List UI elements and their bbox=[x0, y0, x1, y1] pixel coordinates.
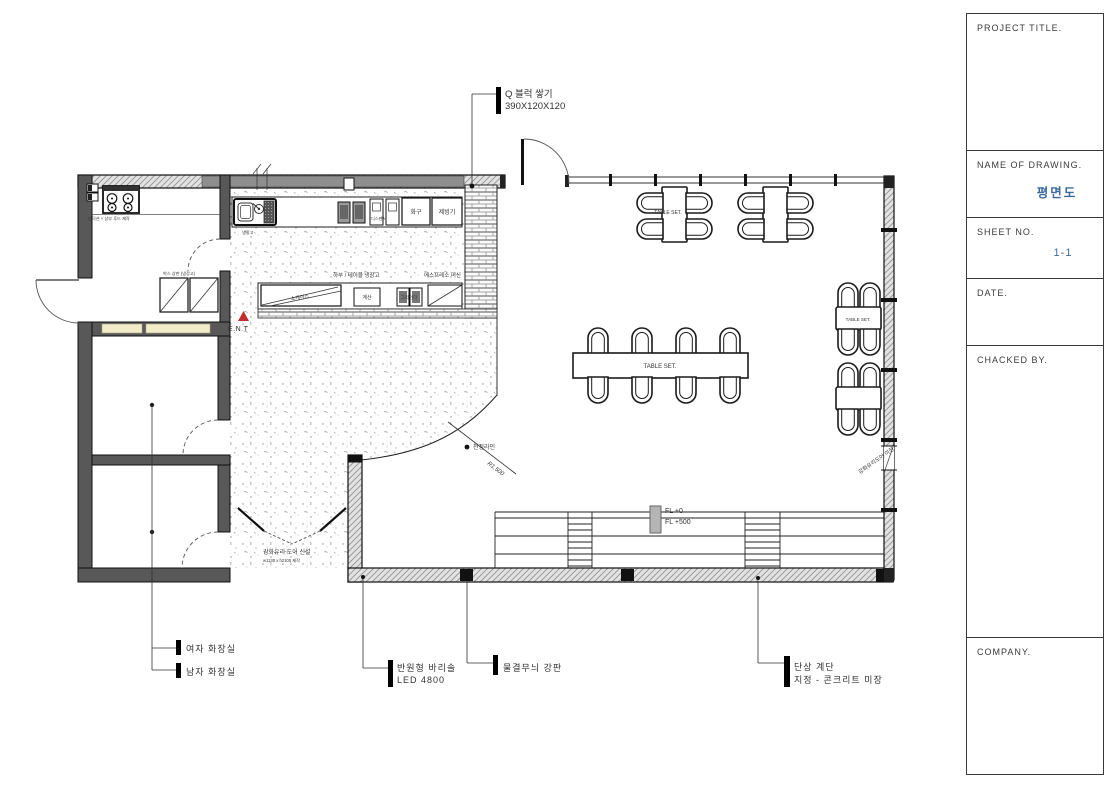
chair bbox=[787, 193, 813, 213]
title-block-sheet-no: SHEET NO. 1-1 bbox=[967, 218, 1103, 279]
leader-dot bbox=[361, 575, 365, 579]
chair bbox=[738, 193, 764, 213]
chair bbox=[632, 328, 652, 354]
women-restroom-door-arc bbox=[183, 420, 218, 455]
chair bbox=[860, 329, 880, 355]
sink-note: 냉장고 bbox=[242, 229, 254, 235]
grinder-label: 그라인더 bbox=[401, 294, 418, 301]
chair bbox=[676, 377, 696, 403]
name-of-drawing-label: NAME OF DRAWING. bbox=[967, 151, 1103, 170]
chair bbox=[838, 329, 858, 355]
drawing-sheet: 인덕션 + 상부 후드 제작 박스 상판 (냉장고) 냉장고 bbox=[0, 0, 1118, 790]
left-exterior-door bbox=[36, 280, 79, 323]
glass-door-new-label: 강화유리 도어 신설 bbox=[263, 548, 311, 556]
sheet-no-label: SHEET NO. bbox=[967, 218, 1103, 237]
table-set-top-1: TABLE SET. bbox=[637, 187, 712, 242]
block-note-line1: Q 블럭 쌓기 bbox=[505, 88, 553, 100]
burner-label: 화구 bbox=[410, 209, 422, 216]
title-block-checked-by: CHACKED BY. bbox=[967, 346, 1103, 638]
floor-level-note: FL +0 FL +500 bbox=[650, 506, 691, 533]
chair bbox=[720, 377, 740, 403]
table-set-center: TABLE SET. bbox=[573, 328, 748, 403]
leader-dot bbox=[465, 445, 470, 450]
wall-finish-strip bbox=[102, 324, 142, 333]
table-set-label: TABLE SET. bbox=[654, 210, 681, 216]
chair bbox=[686, 193, 712, 213]
under-counter-fridge-label: 하부 / 테이블 냉장고 bbox=[333, 271, 380, 279]
barrisol-label-line2: LED 4800 bbox=[397, 675, 445, 685]
company-label: COMPANY. bbox=[967, 638, 1103, 657]
chair bbox=[588, 328, 608, 354]
chair bbox=[720, 328, 740, 354]
barrisol-label-line1: 반원형 바리솔 bbox=[397, 663, 456, 673]
chair bbox=[860, 283, 880, 309]
chair bbox=[632, 377, 652, 403]
fridge-note: 박스 상판 (냉장고) bbox=[163, 270, 196, 277]
chair bbox=[686, 219, 712, 239]
sink-icon bbox=[234, 199, 276, 225]
stage-label-line2: 지정 - 콘크리트 미장 bbox=[794, 675, 883, 685]
storefront-glass-wall bbox=[500, 174, 884, 188]
floor-plan: 인덕션 + 상부 후드 제작 박스 상판 (냉장고) 냉장고 bbox=[0, 0, 960, 790]
chair bbox=[637, 219, 663, 239]
chair bbox=[838, 363, 858, 389]
chair bbox=[860, 409, 880, 435]
chair bbox=[860, 363, 880, 389]
stove-icon bbox=[103, 186, 139, 213]
title-block-company: COMPANY. bbox=[967, 638, 1103, 772]
ice-maker-label: 제빙기 bbox=[439, 208, 456, 216]
checked-by-label: CHACKED BY. bbox=[967, 346, 1103, 365]
wall-junction-box bbox=[344, 178, 354, 190]
speckled-floor bbox=[230, 188, 497, 568]
stage-label-line1: 단상 계단 bbox=[794, 661, 835, 672]
refrigerator-unit: 박스 상판 (냉장고) bbox=[160, 270, 218, 312]
table-set-label: TABLE SET. bbox=[846, 317, 871, 322]
chair bbox=[787, 219, 813, 239]
women-restroom-label: 여자 화장실 bbox=[186, 643, 236, 654]
espresso-label: 에스프레소 머신 bbox=[424, 271, 461, 279]
fl-500-label: FL +500 bbox=[665, 519, 691, 526]
table-set-right-1: TABLE SET. bbox=[836, 283, 881, 355]
leader-dot bbox=[470, 184, 475, 189]
sheet-no-value: 1-1 bbox=[967, 247, 1103, 259]
chair bbox=[738, 219, 764, 239]
chair bbox=[588, 377, 608, 403]
chair bbox=[676, 328, 696, 354]
men-restroom-door-arc bbox=[182, 532, 218, 568]
ent-label: E.N.T bbox=[228, 326, 249, 333]
induction-note: 인덕션 + 상부 후드 제작 bbox=[88, 215, 130, 222]
date-label: DATE. bbox=[967, 279, 1103, 298]
block-note-line2: 390X120X120 bbox=[505, 101, 565, 112]
table-set-label: TABLE SET. bbox=[644, 364, 677, 370]
fl-zero-label: FL +0 bbox=[665, 508, 683, 515]
title-block-drawing-name: NAME OF DRAWING. 평면도 bbox=[967, 151, 1103, 218]
kitchen-door-arc bbox=[188, 239, 220, 271]
table-set-right-2 bbox=[836, 363, 881, 435]
q-block-wall bbox=[465, 185, 497, 318]
wave-plate-label: 물결무늬 강판 bbox=[503, 663, 562, 673]
men-restroom-label: 남자 화장실 bbox=[186, 667, 236, 677]
register-label: 계산 bbox=[362, 294, 372, 301]
title-block-date: DATE. bbox=[967, 279, 1103, 346]
glass-door-new-size: w1130 x h2100 제작 bbox=[263, 557, 300, 564]
ceiling-line-label: 천정라인 bbox=[473, 443, 495, 451]
chair bbox=[838, 283, 858, 309]
title-block: PROJECT TITLE. NAME OF DRAWING. 평면도 SHEE… bbox=[966, 13, 1104, 775]
wall-finish-strip bbox=[146, 324, 210, 333]
chair bbox=[838, 409, 858, 435]
drawing-name-value: 평면도 bbox=[967, 182, 1103, 201]
title-block-project: PROJECT TITLE. bbox=[967, 14, 1103, 151]
table-set-top-2 bbox=[738, 187, 813, 242]
project-title-label: PROJECT TITLE. bbox=[967, 14, 1103, 33]
dispenser-label: 디스펜서 bbox=[371, 215, 387, 222]
leader-dot bbox=[756, 576, 760, 580]
main-entry-door bbox=[521, 139, 569, 185]
